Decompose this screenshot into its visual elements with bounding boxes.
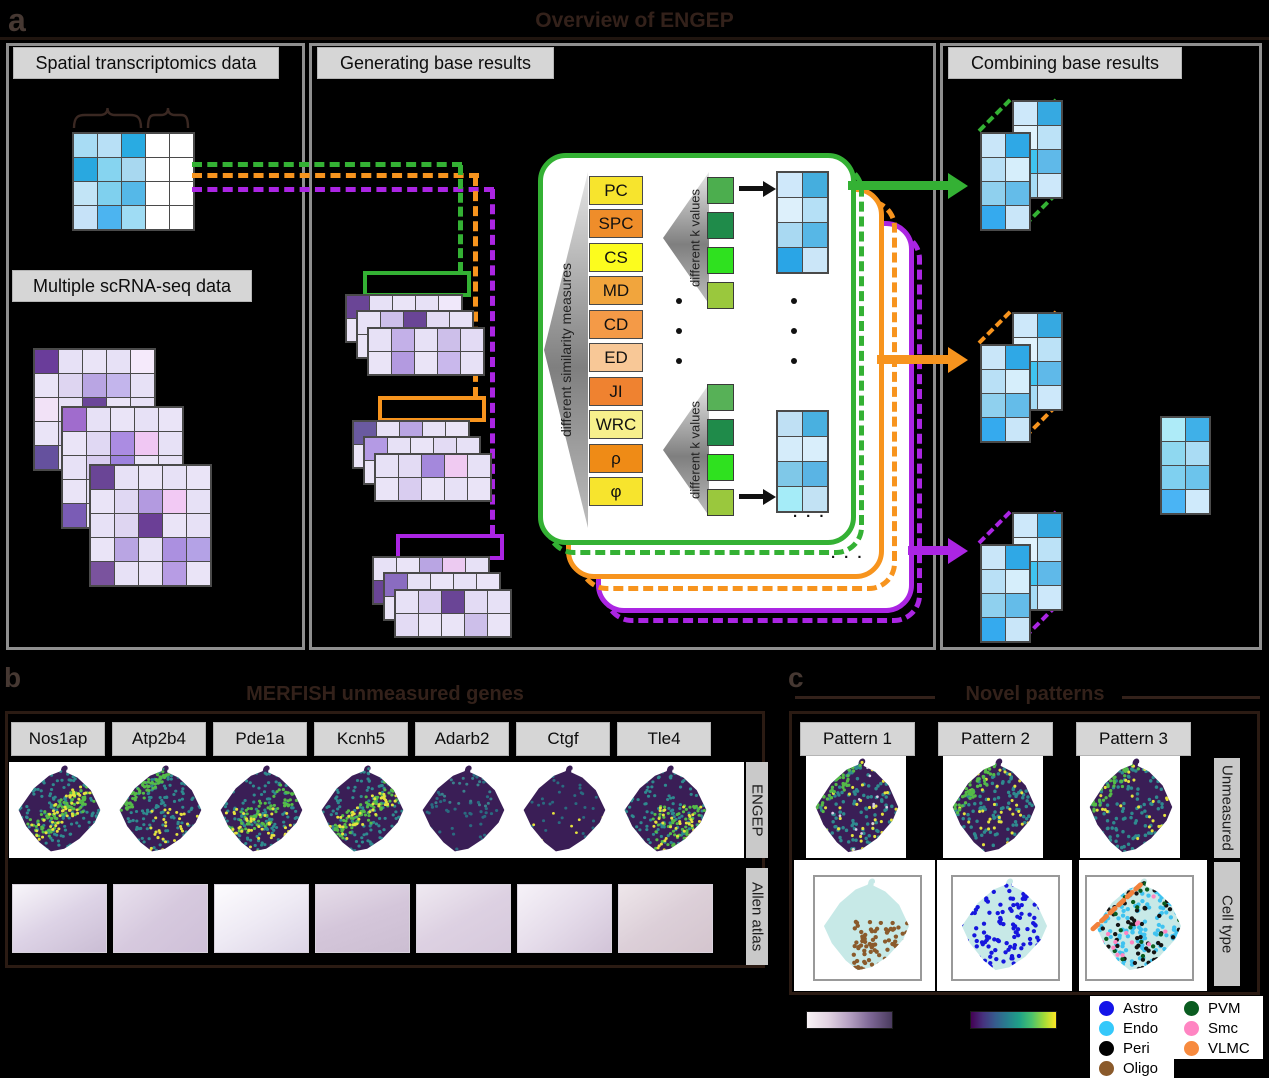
allen-atlas-image-atp2b4 bbox=[113, 884, 208, 953]
allen-atlas-image-ctgf bbox=[517, 884, 612, 953]
purple-dashed-connector-h bbox=[192, 187, 494, 192]
gene-label-adarb2: Adarb2 bbox=[415, 722, 509, 756]
similarity-axis-label: different similarity measures bbox=[552, 180, 580, 520]
measure-wrc: WRC bbox=[589, 410, 643, 439]
panel-c-title: Novel patterns bbox=[950, 683, 1120, 706]
k-square-1c bbox=[707, 247, 734, 274]
combining-label: Combining base results bbox=[948, 47, 1182, 79]
gene-label-ctgf: Ctgf bbox=[516, 722, 610, 756]
legend-label: VLMC bbox=[1208, 1040, 1250, 1057]
pattern-3-label: Pattern 3 bbox=[1076, 722, 1191, 756]
title-rule bbox=[0, 37, 1269, 40]
ellipsis-dot bbox=[676, 328, 682, 334]
astro-dot-icon bbox=[1099, 1001, 1114, 1016]
measure-phi: φ bbox=[589, 477, 643, 506]
legend-label: Astro bbox=[1123, 1000, 1158, 1017]
panel-c-tag: c bbox=[788, 664, 804, 692]
k-square-1d bbox=[707, 282, 734, 309]
oligo-dot-icon bbox=[1099, 1061, 1114, 1076]
legend-label: Oligo bbox=[1123, 1060, 1158, 1077]
k-square-2b bbox=[707, 419, 734, 446]
unmeasured-row-label: Unmeasured bbox=[1214, 758, 1240, 858]
ellipsis-dot bbox=[791, 358, 797, 364]
celltype-row-label: Cell type bbox=[1214, 862, 1240, 986]
scrna-data-label: Multiple scRNA-seq data bbox=[12, 270, 252, 302]
engep-row-label: ENGEP bbox=[746, 762, 768, 858]
measure-ed: ED bbox=[589, 343, 643, 372]
engep-map-adarb2 bbox=[415, 765, 510, 855]
brace-measured-genes-icon bbox=[72, 106, 143, 135]
green-dashed-connector-v bbox=[458, 165, 463, 272]
arrow-k2-to-result-icon bbox=[739, 494, 763, 499]
celltype-2-map bbox=[954, 878, 1053, 974]
orange-ref-matrix-3 bbox=[374, 453, 492, 502]
measure-rho: ρ bbox=[589, 444, 643, 473]
k-square-1a bbox=[707, 177, 734, 204]
orange-dashed-connector-h bbox=[192, 173, 479, 178]
k-square-2a bbox=[707, 384, 734, 411]
engep-map-pde1a bbox=[213, 765, 308, 855]
vlmc-dot-icon bbox=[1184, 1041, 1199, 1056]
panel-b-title: MERFISH unmeasured genes bbox=[5, 683, 765, 706]
pattern-1-unmeasured-map bbox=[808, 758, 904, 856]
orange-combined-front-grid bbox=[980, 344, 1031, 443]
figure-title: Overview of ENGEP bbox=[0, 9, 1269, 33]
pattern-2-unmeasured-map bbox=[945, 758, 1041, 856]
arrow-k1-to-result-icon bbox=[739, 186, 763, 191]
panel-c-title-line-left bbox=[795, 696, 935, 699]
legend-item-vlmc: VLMC bbox=[1184, 1040, 1250, 1057]
ellipsis-dot bbox=[791, 298, 797, 304]
allen-atlas-image-nos1ap bbox=[12, 884, 107, 953]
cards-ellipsis-2: · · · bbox=[831, 549, 864, 566]
gene-label-atp2b4: Atp2b4 bbox=[112, 722, 206, 756]
purple-combine-arrow-icon bbox=[908, 546, 948, 555]
peri-dot-icon bbox=[1099, 1041, 1114, 1056]
green-ref-matrix-3 bbox=[367, 327, 485, 376]
green-combine-arrow-icon bbox=[848, 181, 948, 190]
legend-label: PVM bbox=[1208, 1000, 1241, 1017]
brace-unmeasured-genes-icon bbox=[146, 106, 190, 135]
engep-map-nos1ap bbox=[11, 765, 106, 855]
pvm-dot-icon bbox=[1184, 1001, 1199, 1016]
legend-label: Smc bbox=[1208, 1020, 1238, 1037]
allen-atlas-image-tle4 bbox=[618, 884, 713, 953]
legend-item-smc: Smc bbox=[1184, 1020, 1238, 1037]
gene-label-pde1a: Pde1a bbox=[213, 722, 307, 756]
gene-label-tle4: Tle4 bbox=[617, 722, 711, 756]
pattern-3-unmeasured-map bbox=[1082, 758, 1178, 856]
k-square-1b bbox=[707, 212, 734, 239]
base-result-grid-1 bbox=[776, 171, 829, 274]
allen-atlas-image-adarb2 bbox=[416, 884, 511, 953]
pattern-1-label: Pattern 1 bbox=[800, 722, 915, 756]
measure-md: MD bbox=[589, 276, 643, 305]
ellipsis-dot bbox=[676, 298, 682, 304]
k-values-label-1: different k values bbox=[683, 176, 707, 300]
final-prediction-grid bbox=[1160, 416, 1211, 515]
engep-map-ctgf bbox=[516, 765, 611, 855]
purple-combined-front-grid bbox=[980, 544, 1031, 643]
engep-map-tle4 bbox=[617, 765, 712, 855]
green-combined-front-grid bbox=[980, 132, 1031, 231]
celltype-3-map bbox=[1088, 878, 1187, 974]
scrna-matrix-3 bbox=[89, 464, 212, 587]
allen-row-label: Allen atlas bbox=[746, 868, 768, 965]
allen-atlas-image-kcnh5 bbox=[315, 884, 410, 953]
endo-dot-icon bbox=[1099, 1021, 1114, 1036]
generating-label: Generating base results bbox=[317, 47, 554, 79]
ellipsis-dot bbox=[676, 358, 682, 364]
green-dashed-connector-h bbox=[192, 162, 462, 167]
base-result-grid-2 bbox=[776, 410, 829, 513]
figure-root: a Overview of ENGEP Spatial transcriptom… bbox=[0, 0, 1269, 1078]
ellipsis-dot bbox=[791, 328, 797, 334]
k-square-2d bbox=[707, 489, 734, 516]
legend-item-oligo: Oligo bbox=[1099, 1060, 1158, 1077]
panel-c-title-line-right bbox=[1122, 696, 1260, 699]
legend-item-pvm: PVM bbox=[1184, 1000, 1241, 1017]
viridis-colorbar bbox=[970, 1011, 1057, 1029]
spatial-expression-matrix bbox=[72, 132, 195, 231]
engep-map-kcnh5 bbox=[314, 765, 409, 855]
engep-map-atp2b4 bbox=[112, 765, 207, 855]
purple-ref-matrix-3 bbox=[394, 589, 512, 638]
pattern-2-label: Pattern 2 bbox=[938, 722, 1053, 756]
expression-colorbar bbox=[806, 1011, 893, 1029]
smc-dot-icon bbox=[1184, 1021, 1199, 1036]
measure-pc: PC bbox=[589, 176, 643, 205]
spatial-data-label: Spatial transcriptomics data bbox=[13, 47, 279, 79]
legend-item-astro: Astro bbox=[1099, 1000, 1158, 1017]
k-values-label-2: different k values bbox=[683, 388, 707, 512]
gene-label-nos1ap: Nos1ap bbox=[11, 722, 105, 756]
legend-label: Peri bbox=[1123, 1040, 1150, 1057]
measure-cs: CS bbox=[589, 243, 643, 272]
gene-label-kcnh5: Kcnh5 bbox=[314, 722, 408, 756]
orange-combine-arrow-icon bbox=[877, 355, 948, 364]
measure-spc: SPC bbox=[589, 209, 643, 238]
legend-label: Endo bbox=[1123, 1020, 1158, 1037]
legend-item-peri: Peri bbox=[1099, 1040, 1150, 1057]
measure-ji: JI bbox=[589, 377, 643, 406]
orange-gene-selection-rect bbox=[378, 396, 486, 422]
allen-atlas-image-pde1a bbox=[214, 884, 309, 953]
celltype-1-map bbox=[816, 878, 915, 974]
legend-item-endo: Endo bbox=[1099, 1020, 1158, 1037]
k-square-2c bbox=[707, 454, 734, 481]
measure-cd: CD bbox=[589, 310, 643, 339]
